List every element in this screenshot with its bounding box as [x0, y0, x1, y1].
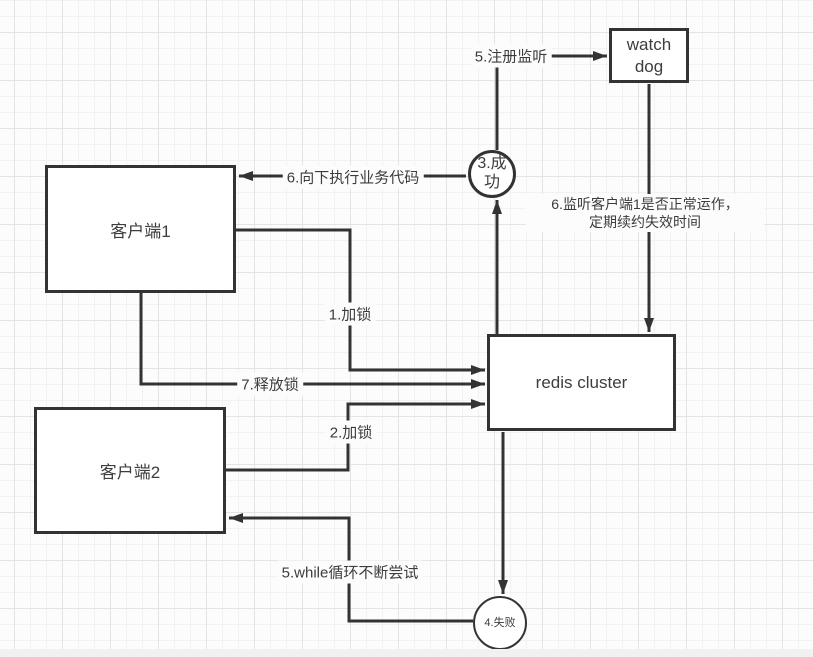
edge-client1-release-to-redis: [141, 293, 485, 384]
client1-label: 客户端1: [110, 217, 170, 242]
label-register-listener: 5.注册监听: [471, 45, 552, 68]
edges-layer: [0, 0, 813, 657]
label-monitor-client1: 6.监听客户端1是否正常运作， 定期续约失效时间: [526, 194, 764, 232]
label-monitor-line2: 定期续约失效时间: [530, 213, 760, 231]
watchdog-label: watch dog: [620, 34, 678, 77]
edge-client1-lock-to-redis: [236, 230, 485, 370]
diagram-canvas: 5.注册监听 6.向下执行业务代码 6.监听客户端1是否正常运作， 定期续约失效…: [0, 0, 813, 657]
success-label: 3.成功: [471, 155, 513, 193]
label-monitor-line1: 6.监听客户端1是否正常运作，: [530, 195, 760, 213]
label-lock-2: 2.加锁: [326, 421, 377, 444]
client2-node: 客户端2: [34, 407, 226, 534]
canvas-bottom-strip: [0, 649, 813, 657]
failure-label: 4.失败: [484, 617, 515, 630]
label-exec-business-code: 6.向下执行业务代码: [283, 166, 424, 189]
client1-node: 客户端1: [45, 165, 236, 293]
label-release-lock: 7.释放锁: [237, 373, 303, 396]
client2-label: 客户端2: [100, 458, 160, 483]
label-lock-1: 1.加锁: [325, 303, 376, 326]
redis-cluster-node: redis cluster: [487, 334, 676, 431]
redis-cluster-label: redis cluster: [536, 373, 628, 393]
failure-circle-node: 4.失败: [473, 596, 527, 650]
edge-success-to-watchdog: [497, 56, 607, 150]
label-while-retry: 5.while循环不断尝试: [278, 561, 423, 584]
watchdog-node: watch dog: [609, 28, 689, 83]
success-circle-node: 3.成功: [468, 150, 516, 198]
